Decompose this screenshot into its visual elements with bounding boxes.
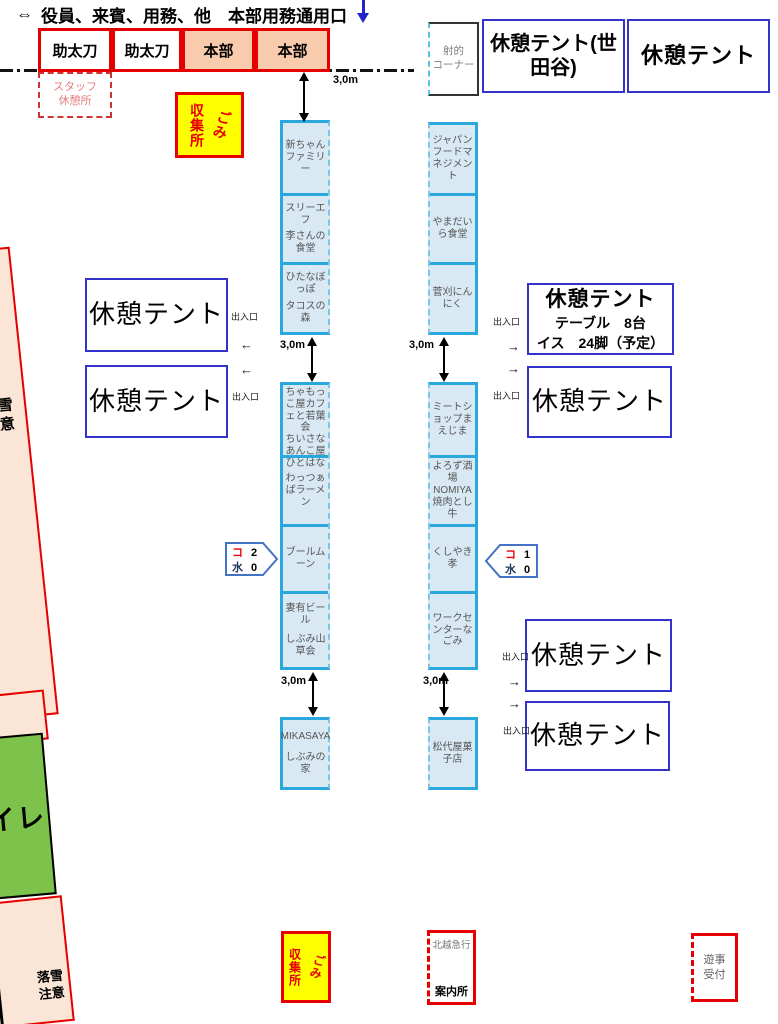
left-arrow-icon: ←	[240, 337, 253, 352]
booth-cell: くしやき孝	[430, 524, 475, 591]
garbage-label: ごみ	[208, 108, 235, 142]
distance-arrow-icon	[443, 341, 445, 378]
staff-rest-label: スタッフ	[53, 81, 97, 95]
booth-tenant: しぶみ山草会	[284, 634, 327, 658]
staff-rest-label: 休憩所	[59, 95, 92, 109]
garbage-station-label: 収集所	[187, 103, 207, 148]
booth-tenant: よろず酒場NOMIYA	[431, 461, 474, 496]
snow-warning-text: 注意	[0, 415, 16, 437]
right-arrow-icon: →	[508, 696, 521, 711]
garbage-station-bottom: 収集所 ごみ	[281, 931, 331, 1003]
booth-tenant: 新ちゃんファミリー	[284, 140, 327, 175]
booth-group-right-3: 松代屋菓子店	[428, 717, 478, 790]
hq-box-honbu-2: 本部	[255, 28, 330, 72]
booth-tenant: 菅刈にんにく	[431, 287, 474, 311]
hq-box-label: 本部	[203, 40, 233, 61]
booth-group-left-3: MIKASAYA しぶみの家	[280, 717, 330, 790]
booth-tenant: しぶみの家	[284, 752, 327, 776]
booth-cell: ジャパンフードマネジメント	[430, 125, 475, 193]
booth-cell: ワークセンターなごみ	[430, 591, 475, 667]
booth-tenant: 妻有ビール	[284, 603, 327, 627]
tent-label: 休憩テント	[89, 299, 224, 330]
distance-label: 3,0m	[281, 675, 306, 687]
snow-warning-strip-upper	[0, 247, 59, 723]
header: ⇔ 役員、来賓、用務、他 本部用務通用口	[16, 2, 347, 27]
distance-label: 3,0m	[333, 74, 358, 86]
garbage-label: ごみ	[305, 952, 328, 982]
booth-tenant: MIKASAYA	[281, 731, 331, 743]
callout-mizu-label: 水	[505, 562, 517, 576]
toilet-block: トイレ	[0, 733, 57, 903]
callout-ko-value: 1	[524, 549, 530, 561]
booth-cell: 菅刈にんにく	[430, 262, 475, 332]
distance-label: 3,0m	[280, 339, 305, 351]
booth-cell: よろず酒場NOMIYA 焼肉とし牛	[430, 455, 475, 524]
distance-arrow-icon	[312, 676, 314, 712]
booth-cell: 松代屋菓子店	[430, 720, 475, 787]
staff-rest-area: スタッフ 休憩所	[38, 72, 112, 118]
info-booth-label: 案内所	[430, 983, 473, 999]
hq-box-sukedachi-1: 助太刀	[38, 28, 112, 72]
callout-ko-value: 2	[251, 547, 257, 559]
tent-bottom-lower: 休憩テント	[525, 701, 670, 771]
callout-ko-label: コ	[232, 547, 243, 559]
garbage-station-top: 収集所 ごみ	[175, 92, 244, 158]
booth-cell: ブールムーン	[283, 524, 328, 591]
hq-box-label: 助太刀	[124, 40, 169, 61]
booth-tenant: ブールムーン	[284, 547, 327, 571]
booth-tenant: タコスの森	[284, 301, 327, 325]
distance-arrow-icon	[303, 76, 305, 118]
booth-tenant: ミートショップまえじま	[431, 402, 474, 437]
distance-label: 3,0m	[409, 339, 434, 351]
entrance-down-arrow-icon	[362, 0, 365, 20]
hq-box-honbu-1: 本部	[182, 28, 255, 72]
booth-cell: MIKASAYA しぶみの家	[283, 720, 328, 787]
booth-cell: ちゃもっこ屋カフェと若葉会 ちいさなあんこ屋ひとはな	[283, 385, 328, 455]
booth-tenant: ちゃもっこ屋カフェと若葉会	[284, 387, 327, 434]
entrance-label: 出入口	[493, 389, 520, 402]
booth-cell: やまだいら食堂	[430, 193, 475, 262]
distance-label: 3,0m	[423, 675, 448, 687]
event-reception-booth: 遊事 受付	[691, 933, 738, 1002]
distance-arrow-icon	[311, 341, 313, 378]
right-arrow-icon: →	[507, 361, 520, 376]
shooting-corner-label: コーナー	[433, 59, 475, 73]
booth-cell: わっつぁばラーメン	[283, 455, 328, 524]
booth-tenant: ジャパンフードマネジメント	[431, 135, 474, 182]
callout-mizu-value: 0	[251, 562, 257, 574]
tent-label: 休憩テント	[546, 287, 656, 312]
callout-ko-label: コ	[505, 549, 516, 561]
tent-setagaya: 休憩テント(世田谷)	[482, 19, 625, 93]
booth-tenant: 松代屋菓子店	[431, 742, 474, 766]
booth-cell: スリーエフ 李さんの食堂	[283, 193, 328, 262]
tent-label: 休憩テント(世田谷)	[484, 32, 623, 80]
snow-warning-strip-lower: 落雪 注意	[0, 895, 75, 1024]
double-arrow-icon: ⇔	[16, 5, 33, 25]
shooting-corner: 射的 コーナー	[428, 22, 479, 96]
venue-map-page: ⇔ 役員、来賓、用務、他 本部用務通用口 助太刀 助太刀 本部 本部 スタッフ …	[0, 0, 778, 1024]
reception-label: 受付	[704, 968, 726, 983]
hq-box-label: 本部	[277, 40, 307, 61]
tent-chairs-label: イス 24脚（予定）	[537, 335, 664, 352]
utility-callout-right: コ 1 水 0	[484, 544, 538, 578]
garbage-station-label: 収集所	[287, 948, 304, 987]
tent-label: 休憩テント	[531, 640, 666, 671]
booth-tenant: 焼肉とし牛	[431, 497, 474, 521]
booth-group-right-1: ジャパンフードマネジメント やまだいら食堂 菅刈にんにく	[428, 122, 478, 335]
shooting-corner-label: 射的	[443, 45, 464, 59]
booth-tenant: くしやき孝	[431, 547, 474, 571]
tent-label: 休憩テント	[641, 43, 756, 69]
right-arrow-icon: →	[507, 339, 520, 354]
tent-bottom-upper: 休憩テント	[525, 619, 672, 692]
right-arrow-icon: →	[508, 674, 521, 689]
callout-mizu-value: 0	[524, 564, 530, 576]
booth-cell: ミートショップまえじま	[430, 385, 475, 455]
tent-tables-label: テーブル 8台	[555, 315, 646, 332]
info-operator-label: 北越急行	[430, 937, 473, 951]
entrance-label: 出入口	[502, 650, 529, 663]
tent-right-lower: 休憩テント	[527, 366, 672, 438]
entrance-label: 出入口	[232, 390, 259, 403]
booth-tenant: ひたなぼっぽ	[284, 272, 327, 296]
booth-cell: 妻有ビール しぶみ山草会	[283, 591, 328, 667]
tent-left-upper: 休憩テント	[85, 278, 228, 352]
booth-tenant: 李さんの食堂	[284, 231, 327, 255]
utility-callout-left: コ 2 水 0	[225, 542, 279, 576]
tent-label: 休憩テント	[89, 386, 224, 417]
callout-mizu-label: 水	[232, 560, 244, 574]
booth-cell: 新ちゃんファミリー	[283, 123, 328, 193]
page-title: 役員、来賓、用務、他 本部用務通用口	[41, 2, 347, 27]
left-arrow-icon: ←	[240, 362, 253, 377]
hq-box-sukedachi-2: 助太刀	[112, 28, 182, 72]
reception-label: 遊事	[704, 953, 726, 968]
booth-group-right-2: ミートショップまえじま よろず酒場NOMIYA 焼肉とし牛 くしやき孝 ワークセ…	[428, 382, 478, 670]
information-booth: 北越急行 案内所	[427, 930, 476, 1005]
hq-box-label: 助太刀	[52, 40, 97, 61]
tent-top-right: 休憩テント	[627, 19, 770, 93]
booth-cell: ひたなぼっぽ タコスの森	[283, 262, 328, 332]
tent-right-upper: 休憩テント テーブル 8台 イス 24脚（予定）	[527, 283, 674, 355]
booth-group-left-2: ちゃもっこ屋カフェと若葉会 ちいさなあんこ屋ひとはな わっつぁばラーメン ブール…	[280, 382, 330, 670]
entrance-label: 出入口	[231, 310, 258, 323]
entrance-label: 出入口	[493, 315, 520, 328]
toilet-label: トイレ	[0, 794, 47, 840]
booth-group-left-1: 新ちゃんファミリー スリーエフ 李さんの食堂 ひたなぼっぽ タコスの森	[280, 120, 330, 335]
booth-tenant: わっつぁばラーメン	[284, 473, 327, 508]
tent-left-lower: 休憩テント	[85, 365, 228, 438]
tent-label: 休憩テント	[530, 720, 665, 751]
snow-warning-text: 注意	[38, 984, 66, 1004]
entrance-label: 出入口	[503, 724, 530, 737]
booth-tenant: スリーエフ	[284, 203, 327, 227]
booth-tenant: やまだいら食堂	[431, 217, 474, 241]
snow-warning-label: 落雪 注意	[36, 968, 65, 1004]
tent-label: 休憩テント	[532, 386, 667, 417]
booth-tenant: ワークセンターなごみ	[431, 613, 474, 648]
